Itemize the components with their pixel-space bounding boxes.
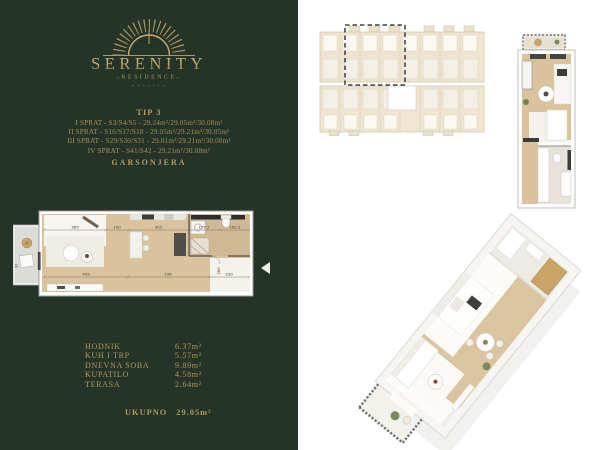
serenity-logo: SERENITY -RESIDENCE- — [0, 0, 298, 86]
room-area: 6.37m² — [175, 342, 202, 351]
room-label: HODNIK — [85, 342, 175, 351]
type-label: TIP 3 — [0, 108, 298, 117]
dim-100: 100 — [113, 225, 121, 230]
brand-subtitle: -RESIDENCE- — [117, 75, 181, 81]
room-label: KUH I TRP — [85, 351, 175, 360]
dim-360: 360 — [216, 267, 221, 275]
dim-196: 196 — [164, 272, 172, 277]
carousel-left-arrow-icon[interactable] — [261, 262, 270, 274]
brochure-page: SERENITY -RESIDENCE- TIP 3 I SPRAT - S3/… — [0, 0, 600, 450]
room-label: DNEVNA SOBA — [85, 361, 175, 370]
unit-info-block: TIP 3 I SPRAT - S3/S4/S5 - 29.24m²/29.05… — [0, 108, 298, 167]
dim-230: 230 — [225, 272, 233, 277]
total-label: UKUPNO — [125, 408, 167, 417]
room-area: 2.64m² — [175, 380, 202, 389]
building-overview-plan — [318, 12, 486, 136]
dim-162-5: 162.5 — [230, 225, 241, 230]
dim-385: 385 — [71, 225, 79, 230]
floor-line-3: III SPRAT - S29/S30/S31 - 29.01m²/29.21m… — [0, 137, 298, 146]
terrace-plan: 92 — [13, 225, 42, 285]
list-item: KUH I TRP 5.57m² — [85, 351, 225, 360]
dim-177-5: 177.5 — [199, 225, 210, 230]
total-value: 29.05m² — [176, 408, 211, 417]
list-item: DNEVNA SOBA 9.89m² — [85, 361, 225, 370]
bathroom-zone — [538, 146, 571, 204]
terrace-top — [523, 35, 565, 50]
room-label: TERASA — [85, 380, 175, 389]
total-area-row: UKUPNO 29.05m² — [125, 408, 212, 417]
dim-455: 455 — [82, 272, 90, 277]
unit-plan-vertical — [505, 12, 590, 218]
floor-line-1: I SPRAT - S3/S4/S5 - 29.24m²/29.05m²/30.… — [0, 119, 298, 128]
unit-3d-view — [352, 212, 596, 450]
room-area-list: HODNIK 6.37m² KUH I TRP 5.57m² DNEVNA SO… — [85, 342, 225, 389]
floorplan-2d: 92 — [13, 205, 259, 302]
floor-line-2: II SPRAT - S16/S17/S18 - 29.05m²/29.21m²… — [0, 128, 298, 137]
list-item: KUPATILO 4.58m² — [85, 370, 225, 379]
room-label: KUPATILO — [85, 370, 175, 379]
stair-core — [388, 86, 416, 110]
list-item: HODNIK 6.37m² — [85, 342, 225, 351]
brand-name: SERENITY — [91, 54, 207, 73]
room-area: 4.58m² — [175, 370, 202, 379]
room-area: 5.57m² — [175, 351, 202, 360]
dim-terrace: 92 — [15, 263, 19, 268]
floor-line-4: IV SPRAT - S41/S42 - 29.21m²/30.08m² — [0, 147, 298, 156]
list-item: TERASA 2.64m² — [85, 380, 225, 389]
unit-type-label: GARSONJERA — [0, 158, 298, 167]
dim-305: 305 — [155, 225, 163, 230]
room-area: 9.89m² — [175, 361, 202, 370]
